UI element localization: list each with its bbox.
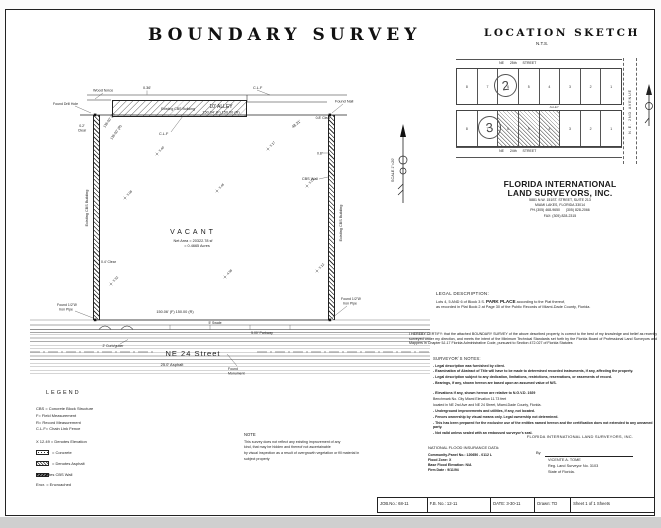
signature-line xyxy=(545,455,633,457)
note-item: - Examination of Abstract of Title will … xyxy=(433,369,657,373)
lot-cell-subject: 4 xyxy=(540,111,561,146)
lot-number: 6 xyxy=(507,127,509,131)
lot-number: 7 xyxy=(486,85,488,89)
note-item: - Fences ownership by visual means only.… xyxy=(433,415,657,419)
street-name: NE 24 Street xyxy=(166,349,221,358)
lot-cell-subject: 5 xyxy=(519,111,540,146)
legend-swatch-row: = Denotes Asphalt xyxy=(36,461,166,466)
signature-firm-name: FLORIDA INTERNATIONAL LAND SURVEYORS, IN… xyxy=(501,434,659,439)
asphalt-label: 25.0' Asphalt xyxy=(161,362,185,367)
note-item: - This has been prepared for the exclusi… xyxy=(433,421,657,430)
clf-label-top: C.L.F xyxy=(253,86,263,90)
legend-elevation-item: X 12.49 = Denotes Elevation xyxy=(36,439,166,444)
lot-number: 1 xyxy=(610,127,612,131)
vacant-label: VACANT xyxy=(170,229,216,236)
north-arrow-icon xyxy=(641,80,657,130)
elevation-value: 5.46 xyxy=(218,182,225,189)
alley-dimension: 150.04' (F) 150.00 (R) xyxy=(202,111,240,115)
surveyor-state: State of Florida. xyxy=(548,470,658,476)
legend-encroached-item: Encr. = Encroached xyxy=(36,482,166,487)
title-block: JOB.No.: 68-11 F.B. No.: 12-11 DATE: 3-3… xyxy=(377,497,655,513)
elevation-value: 5.32 xyxy=(112,275,119,282)
found-pipe-right-2: Iron Pipe xyxy=(343,302,357,306)
sheet-number-cell: Sheet 1 of 1 Sheets xyxy=(571,498,654,512)
lot-cell: 5 xyxy=(519,69,540,104)
lot-cell: 4 xyxy=(540,69,561,104)
found-monument-2: Monument xyxy=(228,372,245,376)
lot-cell: 1 xyxy=(601,111,621,146)
legal-description: LEGAL DESCRIPTION: Lots 4, 5 AND 6 of Bl… xyxy=(436,291,658,309)
legal-heading: LEGAL DESCRIPTION: xyxy=(436,291,658,296)
lot-cell: 1 xyxy=(601,69,621,104)
note-item: - Legal description was furnished by cli… xyxy=(433,364,657,368)
legend-item: C.L.F= Chain Link Fence xyxy=(36,426,166,431)
street-bottom-label: NE 24th STREET xyxy=(499,149,536,153)
sketch-street-bottom: NE 24th STREET xyxy=(456,147,622,158)
south-dimension: 150.06' (F) 150.00 (R) xyxy=(156,310,194,314)
page-title: BOUNDARY SURVEY xyxy=(148,25,421,45)
clear-04-label: 0.4' Clear xyxy=(101,260,117,264)
boundary-lines xyxy=(30,95,430,352)
lot-number: 8 xyxy=(466,85,468,89)
plat-name: PARK PLACE xyxy=(486,299,516,304)
job-number-cell: JOB.No.: 68-11 xyxy=(378,498,428,512)
elevation-value: 4.98 xyxy=(226,268,233,275)
lot-number: 1 xyxy=(610,85,612,89)
survey-drawing: 10' ALLEY 150.04' (F) 150.00 (R) VACANT … xyxy=(25,58,435,398)
elevation-marks xyxy=(110,148,319,286)
flood-heading: NATIONAL FLOOD INSURANCE DATA: xyxy=(428,445,538,450)
lot-cell: 2 xyxy=(581,69,602,104)
street-top-label: NE 25th STREET xyxy=(499,61,536,65)
flood-insurance-data: NATIONAL FLOOD INSURANCE DATA: Community… xyxy=(428,445,538,474)
note-block-heading: NOTE xyxy=(244,432,429,437)
lot-number: 3 xyxy=(569,127,571,131)
curb-label: 2' Curb/gutter xyxy=(102,344,124,348)
north-building-label: Existing CBS Building xyxy=(161,107,195,111)
legend-swatch-label: = Concrete xyxy=(52,450,72,455)
legend-swatch-row: = Concrete xyxy=(36,450,166,455)
lot-cell: 2 xyxy=(581,111,602,146)
note-item: - Elevations if any, shown hereon are re… xyxy=(433,391,657,395)
lot-number: 3 xyxy=(569,85,571,89)
note-block: NOTE This survey does not reflect any ex… xyxy=(244,432,429,463)
page-edge-shadow xyxy=(0,517,661,528)
location-sketch: NE 25th STREET 8 7 6 5 4 3 2 1 ALLEY 8 7… xyxy=(456,56,622,156)
note-line: This survey does not reflect any existin… xyxy=(244,440,429,444)
note-item: - Legal description subject to any dedic… xyxy=(433,375,657,379)
elevation-value: 5.12 xyxy=(318,262,325,269)
lot-cell-subject: 6 xyxy=(498,111,519,146)
fence-offset-dim: 0.36' xyxy=(143,86,151,90)
alley-label: ALLEY xyxy=(550,105,559,109)
cbs-wall-swatch-icon xyxy=(36,473,49,477)
elevation-value: 5.40 xyxy=(158,145,165,152)
lot-number: 8 xyxy=(466,127,468,131)
legend-item: CBS = Concrete Block Structure xyxy=(36,406,166,411)
note-item: Benchmark No. City Miami Elevation 11.73… xyxy=(433,397,657,401)
drawing-north-arrow-icon xyxy=(398,124,407,203)
firm-fax: FAX: (305) 828-2315 xyxy=(470,214,650,219)
page: BOUNDARY SURVEY LOCATION SKETCH N.T.S. N… xyxy=(0,0,661,528)
west-dim-r: 135.00' (R) xyxy=(110,124,123,140)
lot-number: 2 xyxy=(590,127,592,131)
legend-heading: LEGEND xyxy=(46,390,81,396)
drawing-labels: 10' ALLEY 150.04' (F) 150.00 (R) VACANT … xyxy=(53,86,395,376)
lot-number: 5 xyxy=(528,85,530,89)
note-item: - Bearings, if any, shown hereon are bas… xyxy=(433,381,657,385)
note-item: - Underground improvements and utilities… xyxy=(433,409,657,413)
notes-heading: SURVEYOR`S NOTES: xyxy=(433,356,657,361)
legal-line1-pre: Lots 4, 5 AND 6 of Block 3 S. xyxy=(436,300,485,304)
legend-item: R= Record Measurement xyxy=(36,420,166,425)
field-book-cell: F.B. No.: 12-11 xyxy=(428,498,491,512)
west-building-label: Existing CBS Building xyxy=(85,190,89,227)
legend-swatch-row: = Denotes CBS Wall xyxy=(36,472,166,477)
clear-02-label-1: 0.2' xyxy=(79,124,85,128)
certification-paragraph: I HEREBY CERTIFY: that the attached BOUN… xyxy=(409,332,657,346)
flood-firm-date: Firm Date : 9/11/94 xyxy=(428,468,538,473)
signature-by-label: By xyxy=(536,450,541,455)
parkway-label: 5.00' Parkway xyxy=(251,331,273,335)
sketch-block-2: 8 7 6 5 4 3 2 1 xyxy=(456,68,622,105)
firm-block: FLORIDA INTERNATIONAL LAND SURVEYORS, IN… xyxy=(470,180,650,219)
lot-cell: 3 xyxy=(560,69,581,104)
signature-block: VICENTE A. TOME Reg. Land Surveyor No. 3… xyxy=(548,458,658,476)
avenue-corridor: N.E. 2ND AVENUE xyxy=(623,58,637,164)
elevation-value: 5.17 xyxy=(269,140,276,147)
clf-label-mid: C.L.F xyxy=(159,132,169,136)
legal-line1-post: according to the Plat thereof, xyxy=(517,300,566,304)
note-item: located in NE 2nd Ave and NE 24 Street, … xyxy=(433,403,657,407)
found-pipe-left-1: Found 1/2"Ø xyxy=(57,303,77,307)
elevation-value: 5.08 xyxy=(126,189,133,196)
avenue-label: N.E. 2ND AVENUE xyxy=(628,89,632,134)
lot-cell: 8 xyxy=(457,69,478,104)
dim-08-label: 0.8' xyxy=(317,152,323,156)
legend: CBS = Concrete Block Structure F= Field … xyxy=(36,406,166,489)
found-pipe-right-1: Found 1/2"Ø xyxy=(341,297,361,301)
lot-number: 2 xyxy=(590,85,592,89)
survey-linework: 10' ALLEY 150.04' (F) 150.00 (R) VACANT … xyxy=(25,58,435,398)
alley-label: 10' ALLEY xyxy=(209,104,233,110)
clear-08-label: 0.8' Clear xyxy=(316,116,332,120)
lot-number: 4 xyxy=(548,127,550,131)
legend-swatch-label: = Denotes Asphalt xyxy=(52,461,85,466)
legal-line-2: as recorded in Plat Book 2 at Page 30 of… xyxy=(436,305,658,309)
legal-line-1: Lots 4, 5 AND 6 of Block 3 S. PARK PLACE… xyxy=(436,299,658,304)
concrete-swatch-icon xyxy=(36,450,49,455)
surveyors-notes: SURVEYOR`S NOTES: - Legal description wa… xyxy=(433,356,657,437)
lot-cell: 3 xyxy=(560,111,581,146)
note-line: by visual inspection as a result of over… xyxy=(244,451,429,455)
net-area-1: Net Area = 20322.78 sf xyxy=(174,239,214,243)
found-nail-label: Found Nail xyxy=(335,100,354,104)
found-drill-hole-label: Found Drill Hole xyxy=(53,102,78,106)
clear-02-label-2: Clear xyxy=(78,129,87,133)
location-sketch-nts: N.T.S. xyxy=(536,41,548,46)
date-cell: DATE: 3-30-11 xyxy=(491,498,535,512)
found-monument-1: Found xyxy=(228,367,238,371)
net-area-2: = 0.4665 Acres xyxy=(184,244,210,248)
asphalt-swatch-icon xyxy=(36,461,49,466)
firm-name-2: LAND SURVEYORS, INC. xyxy=(470,189,650,198)
lot-cell: 8 xyxy=(457,111,478,146)
swale-label: 5' Swale xyxy=(208,321,221,325)
note-line: subject property xyxy=(244,457,429,461)
legend-item: F= Field Measurement xyxy=(36,413,166,418)
lot-number: 5 xyxy=(528,127,530,131)
tie-dimension: 48.31' xyxy=(291,119,302,129)
drawn-by-cell: Drawn: TD xyxy=(535,498,571,512)
east-building-label: Existing CBS Building xyxy=(339,205,343,242)
wood-fence-label: Wood fence xyxy=(93,89,113,93)
note-line: kind, that may be hidden and thereof not… xyxy=(244,445,429,449)
location-sketch-title: LOCATION SKETCH xyxy=(484,27,640,39)
scale-label: SCALE 1"=20' xyxy=(391,158,395,182)
found-pipe-left-2: Iron Pipe xyxy=(59,308,73,312)
lot-number: 4 xyxy=(548,85,550,89)
